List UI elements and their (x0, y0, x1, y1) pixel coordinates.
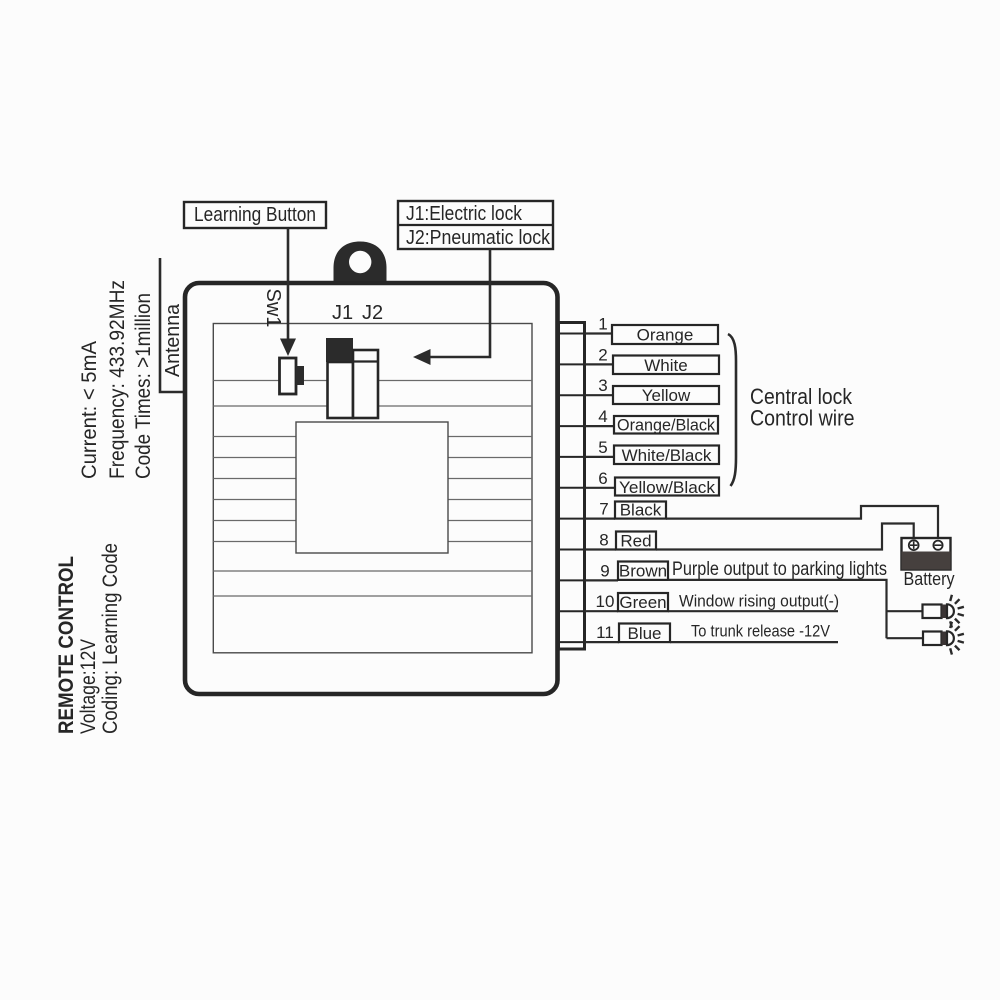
svg-text:Battery: Battery (904, 569, 955, 589)
svg-text:9: 9 (600, 561, 609, 580)
svg-text:J1:Electric lock: J1:Electric lock (406, 203, 523, 225)
svg-text:2: 2 (598, 345, 607, 364)
svg-text:Blue: Blue (627, 624, 661, 643)
svg-text:4: 4 (598, 407, 607, 426)
svg-text:Current: < 5mA: Current: < 5mA (78, 341, 101, 479)
svg-text:Black: Black (620, 500, 662, 519)
svg-text:Orange: Orange (637, 326, 694, 345)
svg-text:White/Black: White/Black (622, 446, 712, 465)
svg-text:Code Times: >1million: Code Times: >1million (132, 293, 155, 479)
svg-text:White: White (644, 356, 687, 375)
svg-text:Green: Green (619, 593, 666, 612)
svg-text:Orange/Black: Orange/Black (617, 416, 715, 435)
svg-text:J2: J2 (362, 302, 383, 324)
svg-text:REMOTE CONTROL: REMOTE CONTROL (55, 556, 78, 734)
svg-text:Antenna: Antenna (162, 303, 184, 377)
svg-text:To trunk release -12V: To trunk release -12V (691, 622, 831, 641)
svg-text:11: 11 (596, 623, 614, 642)
svg-text:Yellow/Black: Yellow/Black (619, 478, 716, 497)
svg-text:Learning Button: Learning Button (194, 204, 316, 226)
svg-text:1: 1 (598, 315, 607, 334)
svg-text:Sw1: Sw1 (262, 289, 284, 328)
svg-text:5: 5 (598, 438, 607, 457)
svg-text:Voltage:12V: Voltage:12V (77, 639, 100, 734)
svg-text:Brown: Brown (619, 562, 667, 581)
svg-text:Purple output to parking light: Purple output to parking lights (672, 559, 887, 580)
svg-text:3: 3 (598, 376, 607, 395)
svg-text:6: 6 (598, 469, 607, 488)
svg-text:Coding: Learning Code: Coding: Learning Code (99, 543, 122, 734)
svg-text:Control wire: Control wire (750, 406, 855, 431)
svg-text:Yellow: Yellow (642, 386, 691, 405)
svg-text:Window rising output(-): Window rising output(-) (679, 592, 839, 611)
svg-text:Frequency: 433.92MHz: Frequency: 433.92MHz (106, 280, 129, 479)
svg-text:7: 7 (599, 500, 608, 519)
svg-text:Red: Red (620, 531, 651, 550)
svg-text:J2:Pneumatic lock: J2:Pneumatic lock (406, 227, 551, 249)
svg-text:10: 10 (596, 592, 615, 611)
svg-text:J1: J1 (332, 302, 353, 324)
svg-text:8: 8 (599, 531, 608, 550)
